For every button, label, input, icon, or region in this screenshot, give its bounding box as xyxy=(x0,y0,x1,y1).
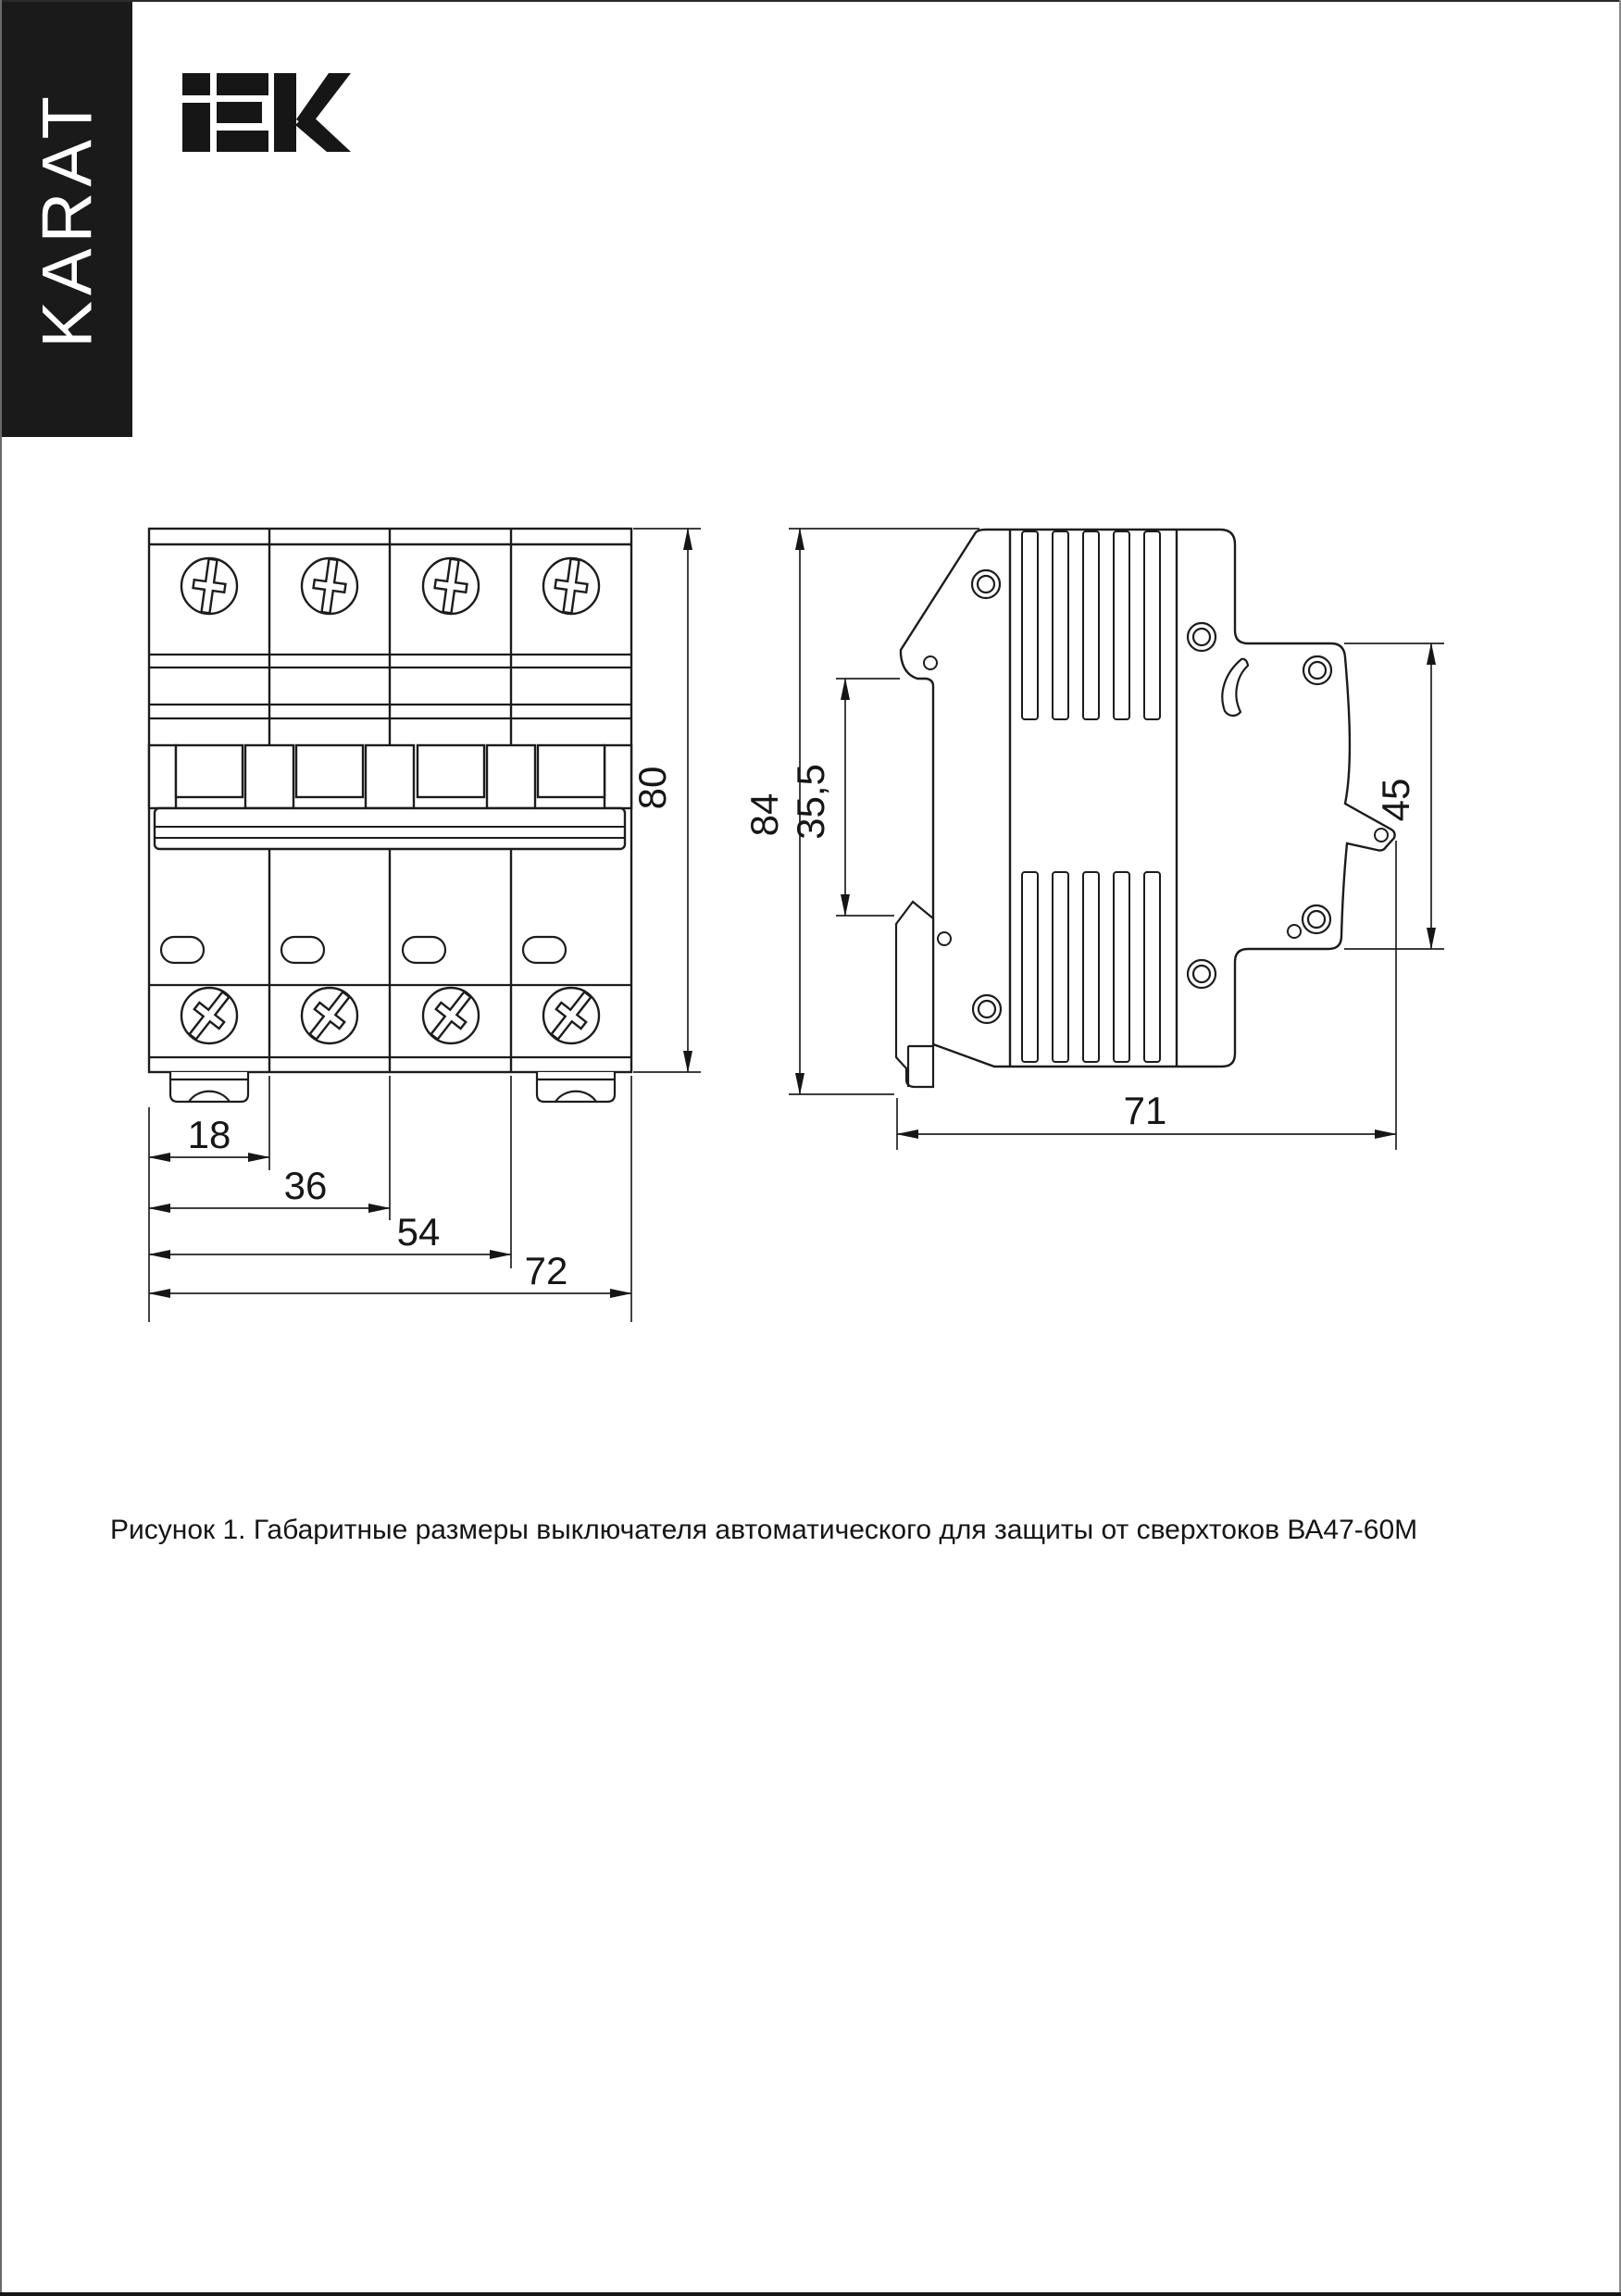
handle-tie-bar xyxy=(155,808,625,849)
dimension-drawing: 80 18 36 54 72 xyxy=(0,0,1621,1393)
dim-label-71: 71 xyxy=(1124,1089,1167,1132)
dim-label-72: 72 xyxy=(525,1249,568,1292)
dim-label-84: 84 xyxy=(742,793,786,837)
side-view xyxy=(896,530,1395,1087)
din-rail-clips-front xyxy=(170,1072,615,1102)
page-border-bottom xyxy=(0,2292,1621,2296)
dim-label-18: 18 xyxy=(188,1113,231,1156)
document-page: KARAT xyxy=(0,0,1621,2296)
breaker-side-body xyxy=(901,530,1395,1067)
din-rail-clip-side xyxy=(896,902,933,1087)
dim-label-36: 36 xyxy=(284,1164,328,1207)
dim-label-45: 45 xyxy=(1374,779,1417,822)
dim-label-35-5: 35,5 xyxy=(789,764,832,840)
dim-label-80: 80 xyxy=(630,767,674,810)
dim-label-54: 54 xyxy=(397,1210,441,1254)
figure-caption: Рисунок 1. Габаритные размеры выключател… xyxy=(110,1515,1438,1546)
front-view xyxy=(149,529,631,1102)
